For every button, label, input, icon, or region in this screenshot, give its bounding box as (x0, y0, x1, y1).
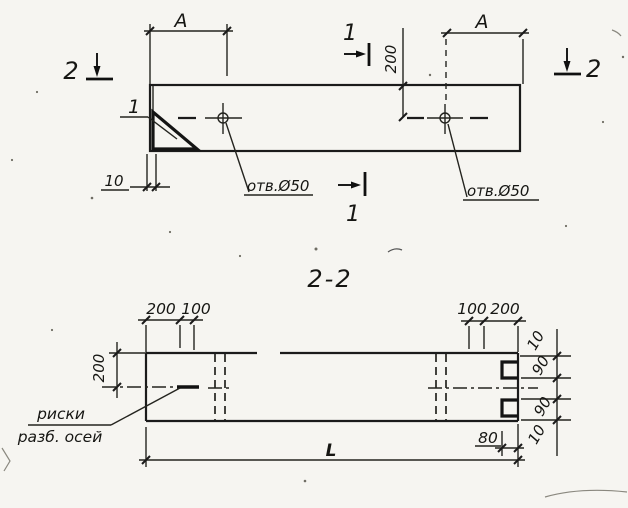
end-notch-upper (502, 362, 518, 378)
section-marker-2-left: 2 (63, 53, 113, 85)
detail-callout-1-label: 1 (128, 96, 140, 118)
dim-200-label: 200 (146, 300, 176, 318)
dim-90-lower-label: 90 (530, 394, 555, 420)
end-notch-lower (502, 400, 518, 416)
dim-200-label: 200 (490, 300, 520, 318)
scan-speck (239, 255, 241, 257)
scan-speck (565, 225, 567, 227)
marker-arrowhead (351, 182, 361, 189)
section-marker-2-right-label: 2 (586, 55, 601, 83)
marker-arrowhead (94, 66, 101, 77)
scan-speck (91, 197, 94, 200)
marker-arrowhead (564, 61, 571, 72)
section-marker-1-top: 1 (343, 21, 369, 66)
axes-note-line2: разб. осей (17, 428, 103, 446)
scan-speck (304, 480, 307, 483)
dim-length-L: L (139, 424, 525, 467)
axis-lines (102, 387, 538, 388)
dim-80: 80 (475, 429, 524, 456)
dim-100-label: 100 (181, 300, 211, 318)
scan-speck (51, 329, 53, 331)
hole-callout-left: отв.Ø50 (226, 123, 313, 195)
section-marker-2-right: 2 (554, 48, 601, 83)
technical-drawing-scan: 1 A (0, 0, 628, 508)
dim-a-left: A (144, 10, 233, 84)
marker-arrowhead (356, 51, 366, 58)
dim-10-top-label: 10 (523, 328, 548, 354)
section-marker-1-top-label: 1 (343, 21, 357, 46)
dim-100-label: 100 (457, 300, 487, 318)
dim-a-right: A (441, 11, 529, 102)
section-view: 2-2 (17, 265, 571, 467)
dim-L-label: L (326, 441, 337, 461)
detail-callout-1: 1 (120, 96, 177, 139)
dim-200-section-left: 200 (90, 342, 146, 398)
axes-note-line1: риски (36, 405, 85, 423)
scan-speck (36, 91, 38, 93)
scan-artifact (545, 490, 627, 497)
dim-10-plan: 10 (101, 154, 170, 191)
section-marker-2-left-label: 2 (63, 57, 78, 85)
hole-callout-right-label: отв.Ø50 (467, 182, 529, 200)
dim-10-bottom-label: 10 (524, 422, 549, 448)
dim-80-label: 80 (478, 429, 498, 447)
section-marker-1-bottom: 1 (338, 172, 365, 227)
hole-left (178, 103, 242, 134)
dim-200-section-label: 200 (90, 354, 108, 383)
dim-10-label: 10 (104, 172, 123, 190)
scan-artifact (2, 448, 10, 471)
hole-right (407, 104, 488, 134)
scan-artifact (388, 249, 402, 252)
scan-artifact (612, 30, 621, 36)
axes-note: риски разб. осей (17, 388, 180, 446)
dim-a-right-label: A (474, 11, 489, 33)
section-beam-outline (146, 353, 518, 421)
dim-a-left-label: A (173, 10, 188, 32)
dim-chain-right: 10 90 90 10 (520, 328, 571, 456)
scan-speck (169, 231, 171, 233)
leader-line (226, 123, 249, 192)
dim-100-200-right: 100 200 (457, 300, 526, 352)
scan-speck (622, 56, 624, 58)
hole-callout-left-label: отв.Ø50 (247, 177, 309, 195)
dim-200-plan-label: 200 (382, 45, 400, 74)
scan-speck (11, 159, 13, 161)
scan-speck (429, 74, 431, 76)
leader-line (448, 124, 467, 197)
plan-view: 1 A (63, 10, 601, 227)
hole-callout-right: отв.Ø50 (448, 124, 539, 200)
section-title: 2-2 (307, 265, 352, 293)
section-marker-1-bottom-label: 1 (346, 202, 360, 227)
dim-200-plan: 200 (382, 28, 407, 121)
dim-200-100-left: 200 100 (138, 300, 211, 352)
hidden-hole-lines (215, 354, 446, 420)
scan-speck (315, 248, 318, 251)
scan-speck (602, 121, 604, 123)
